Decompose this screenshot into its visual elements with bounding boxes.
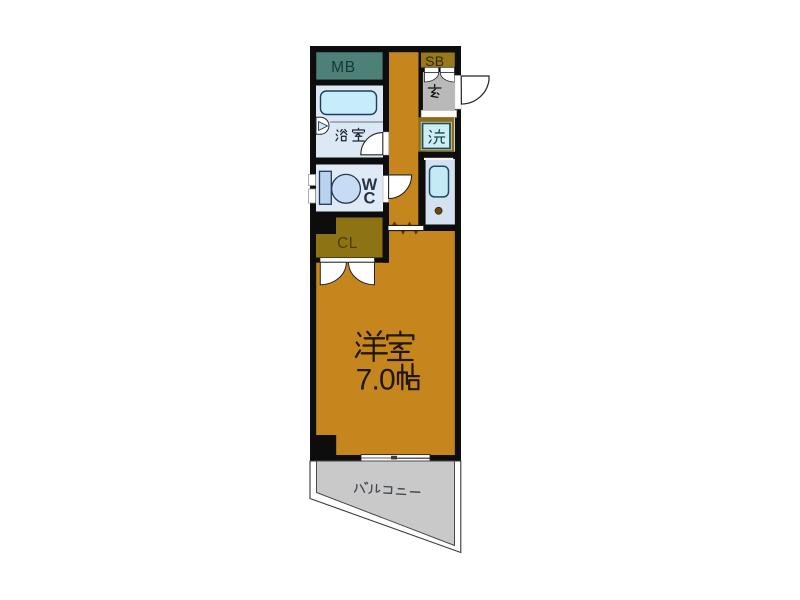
svg-text:7.0: 7.0 — [356, 364, 395, 397]
svg-text:CL: CL — [337, 235, 358, 252]
svg-text:MB: MB — [331, 59, 356, 76]
svg-text:SB: SB — [425, 53, 444, 69]
svg-text:C: C — [363, 190, 375, 208]
